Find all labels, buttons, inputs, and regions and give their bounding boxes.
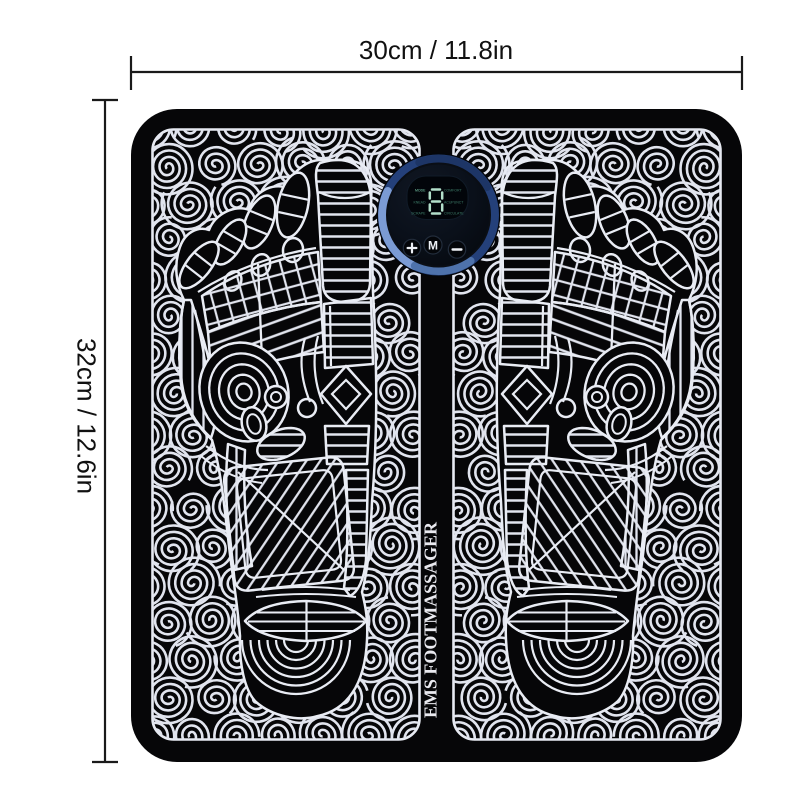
svg-text:COMFORT: COMFORT: [444, 189, 462, 193]
svg-text:SCRAPE: SCRAPE: [411, 212, 426, 216]
svg-text:MODE: MODE: [415, 189, 426, 193]
svg-text:ACUPUNCT: ACUPUNCT: [444, 201, 464, 205]
svg-text:32cm / 12.6in: 32cm / 12.6in: [72, 338, 102, 494]
svg-text:30cm / 11.8in: 30cm / 11.8in: [359, 35, 513, 65]
svg-text:M: M: [428, 239, 438, 253]
svg-text:KNEAD: KNEAD: [413, 201, 426, 205]
svg-text:CIRCULATE: CIRCULATE: [444, 212, 464, 216]
svg-text:EMS FOOTMASSAGER: EMS FOOTMASSAGER: [421, 521, 441, 718]
